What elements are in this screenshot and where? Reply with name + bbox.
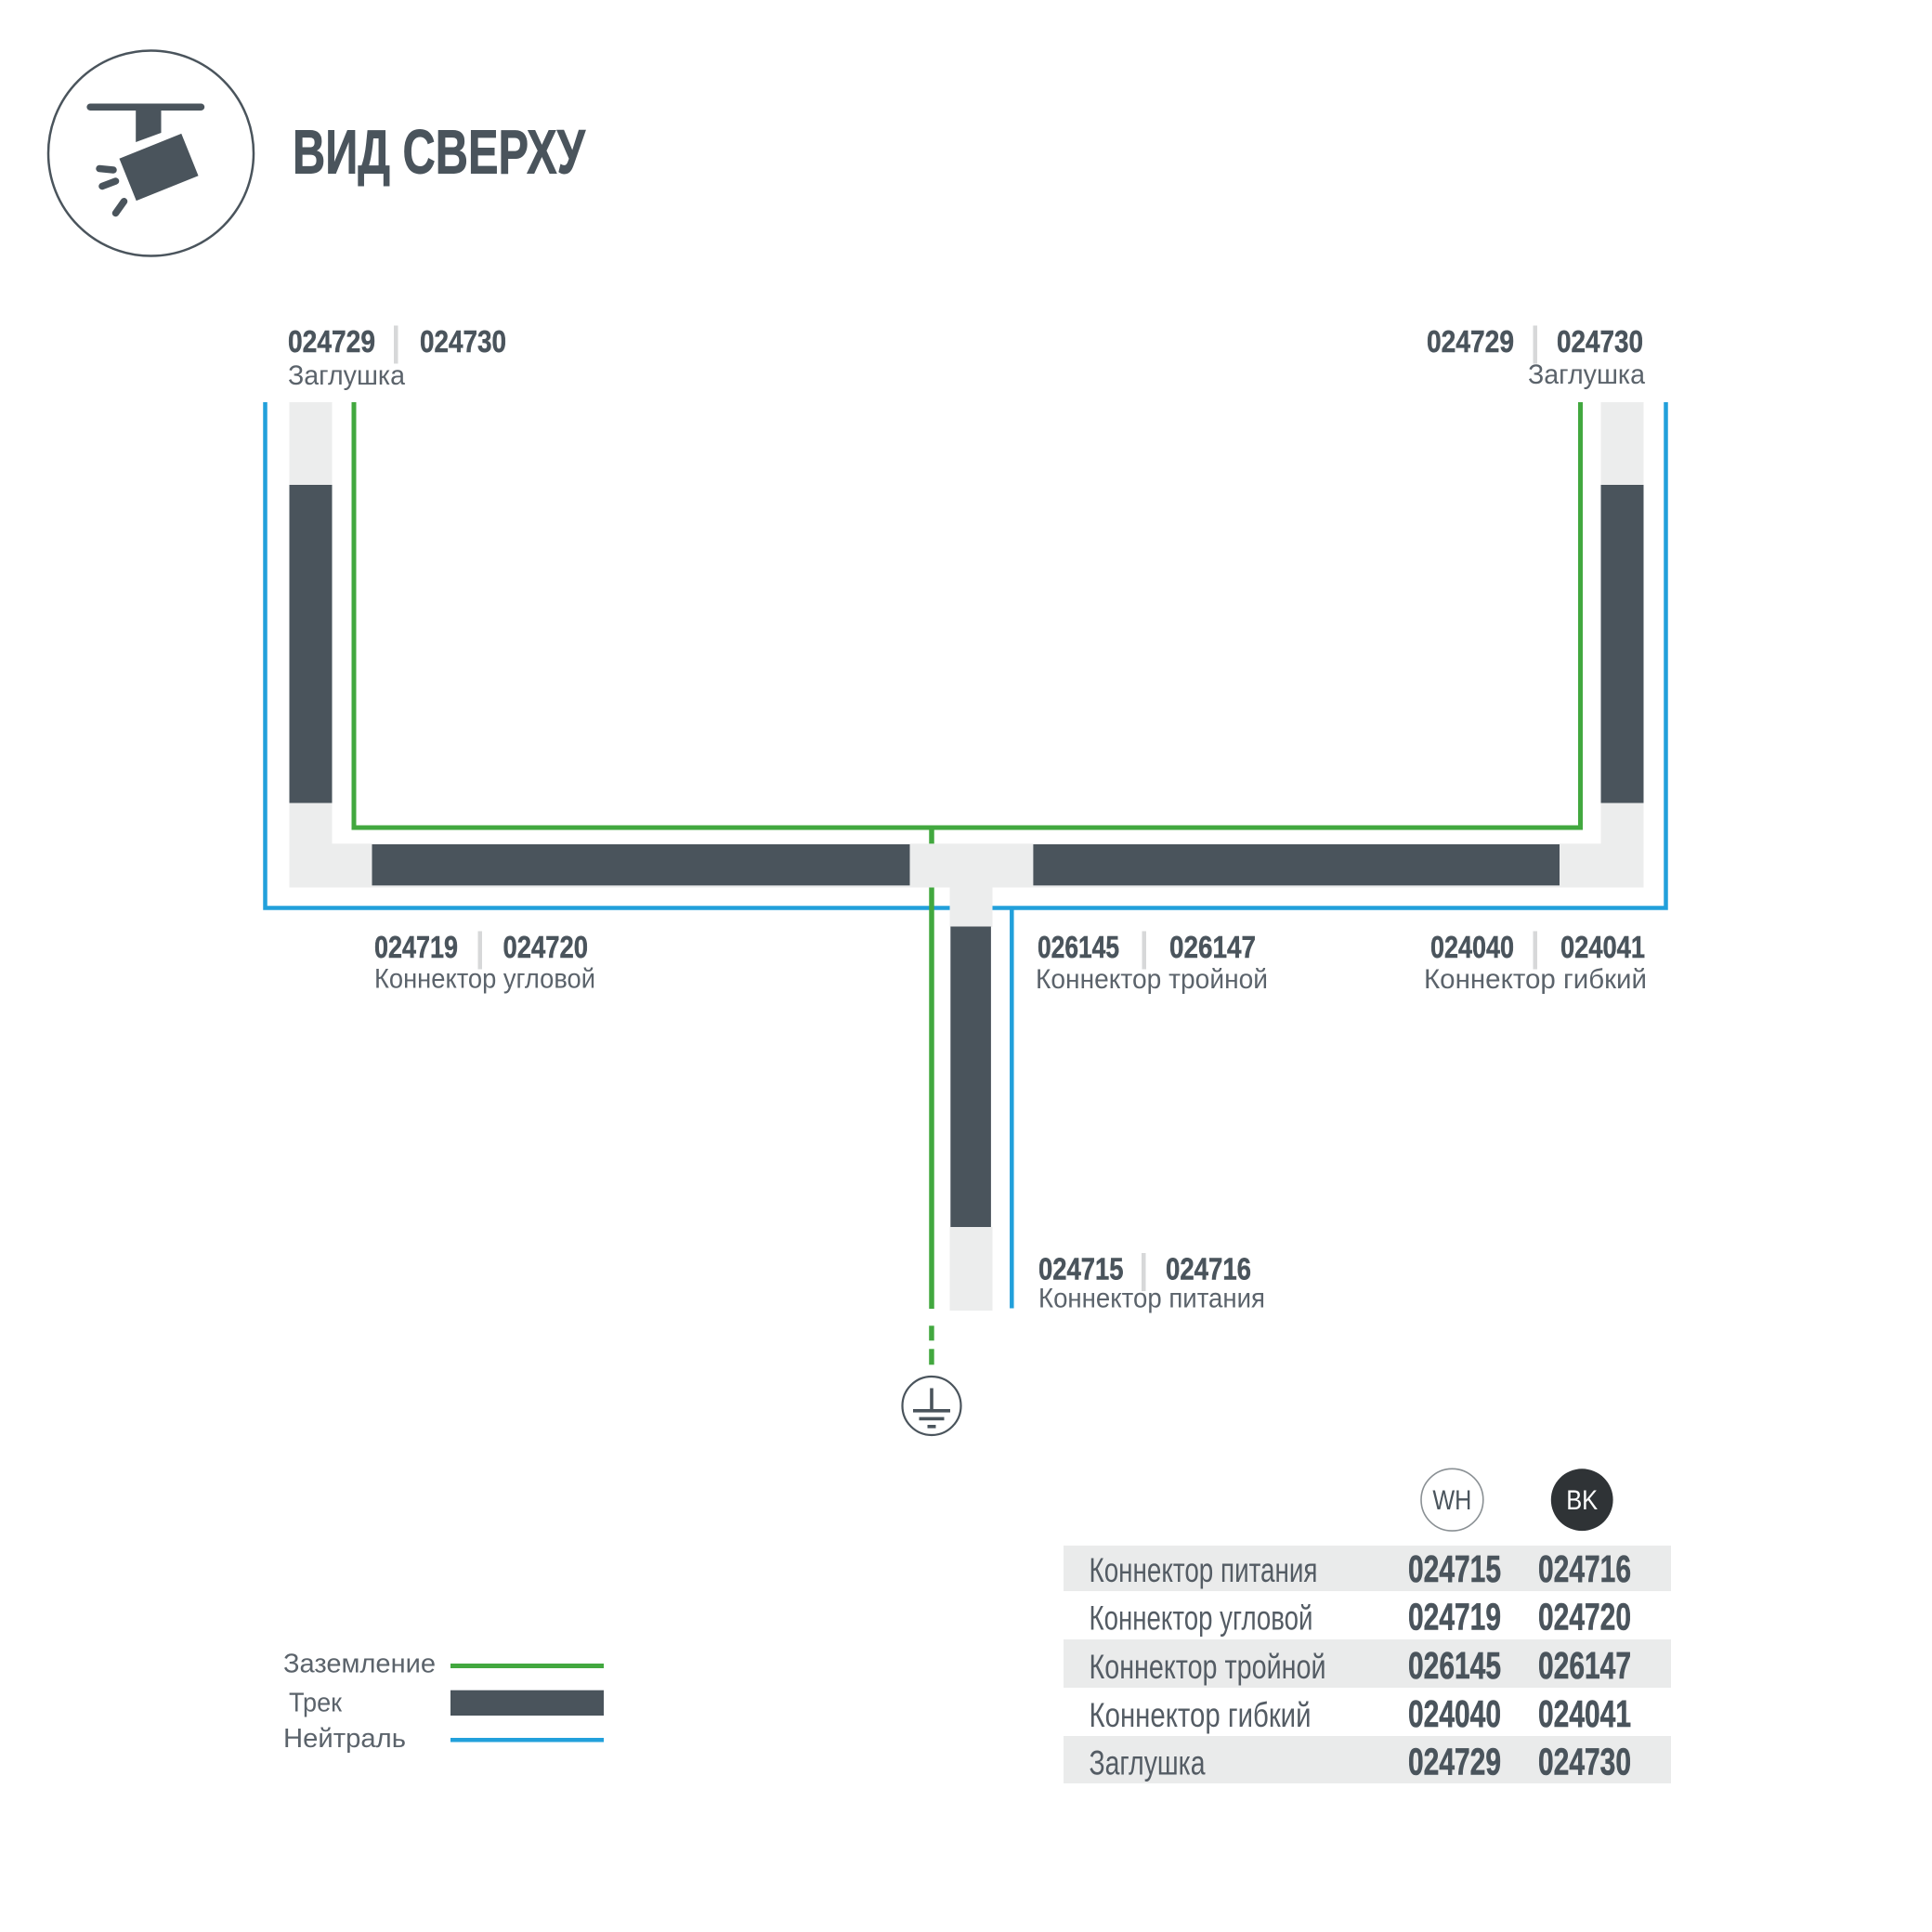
svg-text:024715: 024715	[1038, 1253, 1124, 1287]
svg-text:024041: 024041	[1560, 931, 1645, 965]
svg-text:024730: 024730	[1538, 1740, 1631, 1782]
svg-text:Заземление: Заземление	[283, 1649, 436, 1678]
svg-text:024720: 024720	[1538, 1596, 1631, 1638]
svg-text:024041: 024041	[1538, 1692, 1631, 1735]
svg-text:026145: 026145	[1408, 1644, 1501, 1687]
svg-text:024716: 024716	[1538, 1547, 1631, 1590]
svg-text:ВИД СВЕРХУ: ВИД СВЕРХУ	[293, 118, 586, 188]
svg-text:Коннектор гибкий: Коннектор гибкий	[1090, 1695, 1312, 1734]
svg-text:024729: 024729	[288, 325, 375, 359]
svg-text:Коннектор питания: Коннектор питания	[1038, 1284, 1265, 1314]
svg-text:Нейтраль: Нейтраль	[283, 1724, 406, 1754]
svg-text:026147: 026147	[1169, 931, 1256, 965]
svg-text:Коннектор тройной: Коннектор тройной	[1036, 964, 1268, 995]
svg-text:024720: 024720	[503, 931, 589, 965]
svg-text:Коннектор угловой: Коннектор угловой	[1090, 1599, 1313, 1638]
svg-text:Коннектор питания: Коннектор питания	[1090, 1550, 1318, 1589]
svg-text:024729: 024729	[1408, 1740, 1501, 1782]
svg-text:Заглушка: Заглушка	[1090, 1743, 1206, 1782]
svg-text:026145: 026145	[1038, 931, 1119, 965]
svg-text:024719: 024719	[1408, 1596, 1501, 1638]
svg-text:024716: 024716	[1166, 1253, 1251, 1287]
svg-text:Заглушка: Заглушка	[1528, 359, 1645, 390]
svg-text:Коннектор угловой: Коннектор угловой	[374, 964, 595, 995]
svg-text:024040: 024040	[1430, 931, 1514, 965]
svg-text:024040: 024040	[1408, 1692, 1501, 1735]
svg-text:WH: WH	[1432, 1485, 1471, 1516]
svg-text:024719: 024719	[374, 931, 458, 965]
svg-text:Трек: Трек	[289, 1689, 342, 1718]
svg-text:BK: BK	[1566, 1485, 1598, 1516]
svg-text:024730: 024730	[1557, 325, 1643, 359]
svg-text:Коннектор тройной: Коннектор тройной	[1090, 1647, 1326, 1686]
svg-text:026147: 026147	[1538, 1644, 1631, 1687]
svg-text:024729: 024729	[1427, 325, 1514, 359]
svg-text:Заглушка: Заглушка	[288, 360, 405, 391]
svg-text:024715: 024715	[1408, 1547, 1501, 1590]
svg-text:Коннектор гибкий: Коннектор гибкий	[1424, 964, 1647, 995]
svg-text:024730: 024730	[420, 325, 506, 359]
